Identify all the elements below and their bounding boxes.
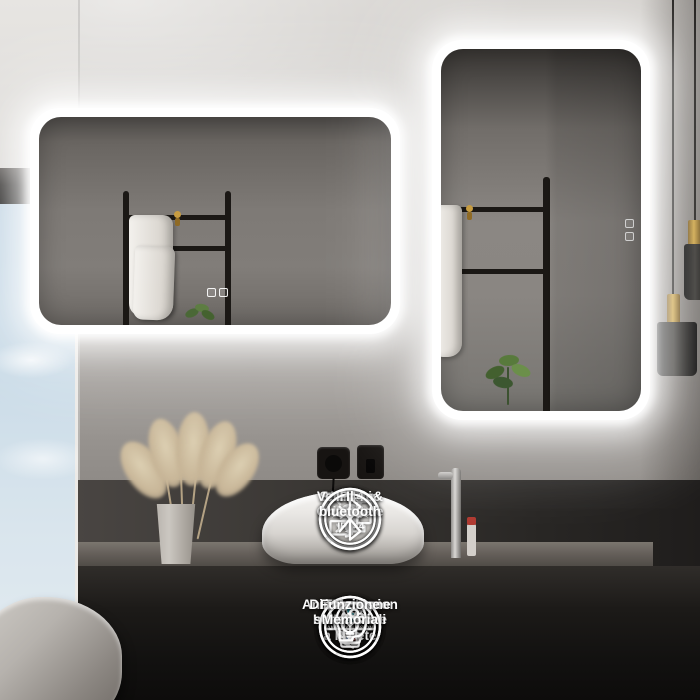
towel-ladder-post bbox=[543, 177, 550, 411]
pendant-light-gold-cap bbox=[667, 294, 680, 324]
vanity-front bbox=[78, 566, 700, 700]
vertical-led-mirror bbox=[432, 40, 650, 420]
feature-label: Il bluetooth bbox=[319, 489, 381, 520]
mirror-glass bbox=[441, 49, 641, 411]
towel bbox=[133, 245, 176, 320]
towel-ladder-post bbox=[225, 191, 231, 325]
gold-hook bbox=[467, 212, 472, 220]
gold-hook bbox=[175, 218, 180, 226]
pendant-light-gold-cap bbox=[688, 220, 700, 246]
power-socket bbox=[317, 447, 350, 479]
towel-ladder-rail bbox=[441, 207, 545, 212]
mirror-touch-sensors bbox=[625, 219, 635, 243]
horizontal-led-mirror bbox=[30, 108, 400, 334]
towel bbox=[441, 205, 462, 357]
product-feature-image: 3X Hrdwire Specchio LED bbox=[0, 0, 700, 700]
feature-label: Funzione Memoria bbox=[320, 597, 380, 628]
gold-hook bbox=[174, 211, 181, 218]
towel-ladder-rail bbox=[441, 269, 545, 274]
faucet bbox=[451, 468, 461, 558]
pendant-light bbox=[657, 322, 697, 376]
mirror-glass bbox=[39, 117, 391, 325]
pendant-cord bbox=[672, 0, 674, 296]
pendant-cord bbox=[694, 0, 696, 222]
pendant-light bbox=[684, 244, 700, 300]
wall-switch bbox=[357, 445, 384, 479]
mirror-touch-sensors bbox=[207, 288, 229, 297]
small-plant bbox=[481, 349, 537, 407]
gold-hook bbox=[466, 205, 473, 212]
small-plant bbox=[183, 301, 217, 325]
toiletry-bottle bbox=[467, 524, 476, 556]
pampas-grass bbox=[118, 412, 268, 562]
